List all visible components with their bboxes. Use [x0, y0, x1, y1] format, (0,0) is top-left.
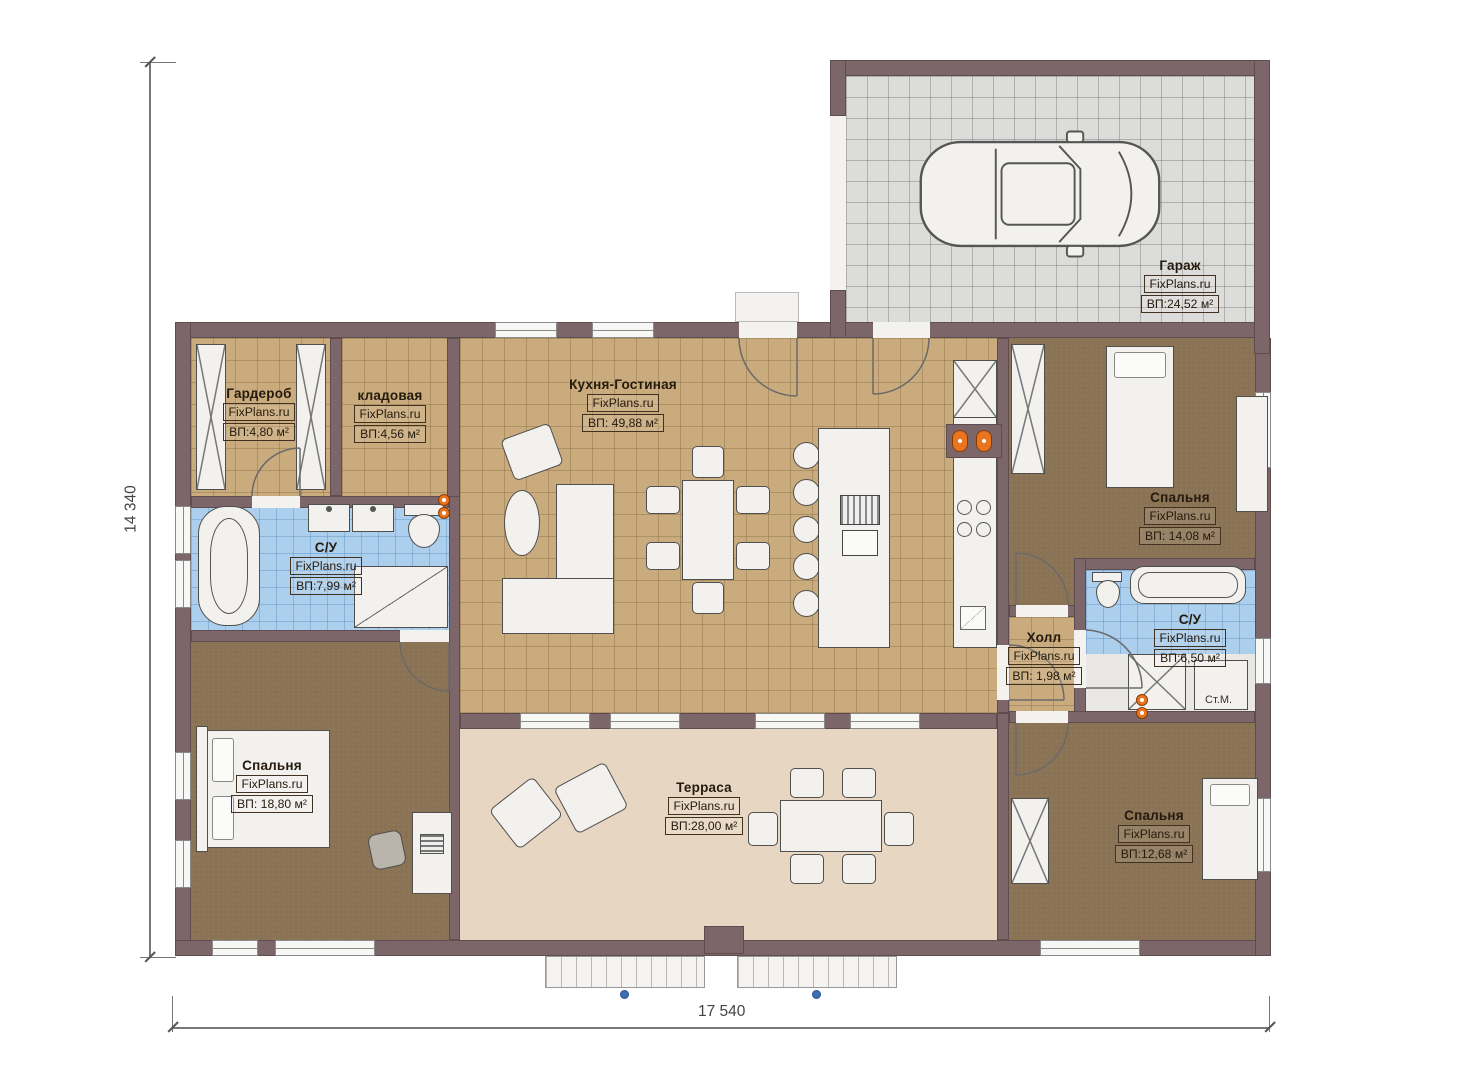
- terrace-door: [755, 713, 825, 729]
- faucet: [326, 506, 332, 512]
- stove-burner: [976, 500, 991, 515]
- bar-stool: [793, 590, 820, 617]
- room-label-bathroom-right: С/У FixPlans.ru ВП:6,50 м²: [1138, 612, 1242, 667]
- dining-chair: [646, 486, 680, 514]
- window: [592, 322, 654, 338]
- room-area: ВП:4,56 м²: [354, 425, 426, 443]
- door-opening: [252, 496, 300, 508]
- exterior-steps: [737, 956, 897, 988]
- dimension-width-label: 17 540: [698, 1003, 745, 1021]
- dining-chair: [736, 542, 770, 570]
- room-area: ВП:4,80 м²: [223, 423, 295, 441]
- dining-chair: [736, 486, 770, 514]
- entrance-door-opening: [739, 322, 797, 338]
- terrace-window: [850, 713, 920, 729]
- radiator-orange: [1136, 707, 1148, 719]
- bar-stool: [793, 479, 820, 506]
- door-opening: [1016, 711, 1068, 723]
- stove-burner: [957, 500, 972, 515]
- brand-watermark: FixPlans.ru: [587, 394, 660, 412]
- window: [175, 840, 191, 888]
- room-label-bathroom-left: С/У FixPlans.ru ВП:7,99 м²: [272, 540, 380, 595]
- brand-watermark: FixPlans.ru: [236, 775, 309, 793]
- wall-segment: [1254, 60, 1270, 354]
- radiator-orange: [438, 494, 450, 506]
- room-name: Гардероб: [205, 386, 313, 401]
- dining-chair: [692, 446, 724, 478]
- island-sink: [842, 530, 878, 556]
- window: [175, 506, 191, 554]
- wardrobe-cabinet: [1011, 344, 1045, 474]
- garage-door-opening: [830, 116, 846, 290]
- tall-cabinet: [953, 360, 997, 418]
- room-name: С/У: [272, 540, 380, 555]
- door-opening: [873, 322, 930, 338]
- room-name: Кухня-Гостиная: [548, 377, 698, 392]
- room-area: ВП: 49,88 м²: [582, 414, 664, 432]
- room-label-terrace: Терраса FixPlans.ru ВП:28,00 м²: [646, 780, 762, 835]
- room-name: Холл: [996, 630, 1092, 645]
- wall-segment: [830, 60, 1270, 76]
- room-area: ВП:6,50 м²: [1154, 649, 1226, 667]
- bar-stool: [793, 553, 820, 580]
- room-label-hall: Холл FixPlans.ru ВП: 1,98 м²: [996, 630, 1092, 685]
- wall-segment: [447, 338, 460, 502]
- window: [212, 940, 258, 956]
- window: [1040, 940, 1140, 956]
- floor-plan: Ст.М. Гараж FixPlans.ru ВП:24,5: [0, 0, 1474, 1080]
- room-name: Гараж: [1120, 258, 1240, 273]
- coffee-table: [504, 490, 540, 556]
- room-area: ВП:12,68 м²: [1115, 845, 1194, 863]
- room-area: ВП:24,52 м²: [1141, 295, 1220, 313]
- terrace-chair: [842, 768, 876, 798]
- window: [1255, 638, 1271, 684]
- entrance-step: [735, 292, 799, 322]
- car-top-view: [915, 128, 1165, 260]
- closet: [1236, 396, 1268, 512]
- wall-segment: [830, 290, 846, 338]
- room-label-bedroom-bottom-left: Спальня FixPlans.ru ВП: 18,80 м²: [216, 758, 328, 813]
- dining-chair: [646, 542, 680, 570]
- dimension-extension: [140, 957, 176, 958]
- bar-stool: [793, 442, 820, 469]
- room-name: Спальня: [216, 758, 328, 773]
- terrace-window: [610, 713, 680, 729]
- step-marker: [620, 990, 629, 999]
- room-area: ВП:28,00 м²: [665, 817, 744, 835]
- window: [495, 322, 557, 338]
- room-area: ВП:7,99 м²: [290, 577, 362, 595]
- dining-chair: [692, 582, 724, 614]
- terrace-chair: [884, 812, 914, 846]
- stove-burner: [976, 522, 991, 537]
- brand-watermark: FixPlans.ru: [1144, 507, 1217, 525]
- desk-chair: [367, 829, 408, 871]
- brand-watermark: FixPlans.ru: [290, 557, 363, 575]
- faucet: [370, 506, 376, 512]
- room-label-bedroom-bottom-right: Спальня FixPlans.ru ВП:12,68 м²: [1098, 808, 1210, 863]
- desk-laptop: [420, 834, 444, 854]
- bar-stool: [793, 516, 820, 543]
- brand-watermark: FixPlans.ru: [223, 403, 296, 421]
- wall-segment: [997, 713, 1009, 940]
- terrace-window: [520, 713, 590, 729]
- terrace-table: [780, 800, 882, 852]
- door-opening: [1016, 605, 1068, 617]
- boiler-orange: [976, 430, 992, 452]
- room-label-storage: кладовая FixPlans.ru ВП:4,56 м²: [336, 388, 444, 443]
- dimension-line-vertical: [149, 62, 151, 958]
- room-name: Терраса: [646, 780, 762, 795]
- door-opening: [400, 630, 449, 642]
- room-name: Спальня: [1124, 490, 1236, 505]
- room-area: ВП: 18,80 м²: [231, 795, 313, 813]
- room-name: С/У: [1138, 612, 1242, 627]
- brand-watermark: FixPlans.ru: [354, 405, 427, 423]
- wardrobe-cabinet: [1011, 798, 1049, 884]
- radiator-orange: [1136, 694, 1148, 706]
- window: [175, 560, 191, 608]
- counter-sink: [960, 606, 986, 630]
- brand-watermark: FixPlans.ru: [1154, 629, 1227, 647]
- radiator-orange: [438, 507, 450, 519]
- room-name: кладовая: [336, 388, 444, 403]
- brand-watermark: FixPlans.ru: [1144, 275, 1217, 293]
- floor-bedroom-top-right-strip: [1009, 558, 1074, 605]
- pillow: [1114, 352, 1166, 378]
- terrace-chair: [842, 854, 876, 884]
- room-label-wardrobe: Гардероб FixPlans.ru ВП:4,80 м²: [205, 386, 313, 441]
- terrace-chair: [790, 854, 824, 884]
- bathtub-inner: [210, 518, 248, 614]
- boiler-orange: [952, 430, 968, 452]
- step-marker: [812, 990, 821, 999]
- room-area: ВП: 1,98 м²: [1006, 667, 1081, 685]
- window: [275, 940, 375, 956]
- room-name: Спальня: [1098, 808, 1210, 823]
- bathtub-inner: [1138, 572, 1238, 598]
- dimension-height-label: 14 340: [123, 485, 141, 532]
- brand-watermark: FixPlans.ru: [1118, 825, 1191, 843]
- dining-table: [682, 480, 734, 580]
- bed-headboard: [196, 726, 208, 852]
- sofa-section: [502, 578, 614, 634]
- dimension-extension: [140, 62, 176, 63]
- pillow: [1210, 784, 1250, 806]
- room-area: ВП: 14,08 м²: [1139, 527, 1221, 545]
- dimension-line-horizontal: [172, 1027, 1270, 1029]
- stove-burner: [957, 522, 972, 537]
- wall-segment: [830, 60, 846, 116]
- brand-watermark: FixPlans.ru: [1008, 647, 1081, 665]
- washing-machine-label: Ст.М.: [1205, 694, 1232, 706]
- exterior-steps: [545, 956, 705, 988]
- terrace-chair: [790, 768, 824, 798]
- terrace-post: [704, 926, 744, 954]
- room-label-kitchen-living: Кухня-Гостиная FixPlans.ru ВП: 49,88 м²: [548, 377, 698, 432]
- island-cooktop: [840, 495, 880, 525]
- room-label-bedroom-top-right: Спальня FixPlans.ru ВП: 14,08 м²: [1124, 490, 1236, 545]
- room-label-garage: Гараж FixPlans.ru ВП:24,52 м²: [1120, 258, 1240, 313]
- window: [175, 752, 191, 800]
- brand-watermark: FixPlans.ru: [668, 797, 741, 815]
